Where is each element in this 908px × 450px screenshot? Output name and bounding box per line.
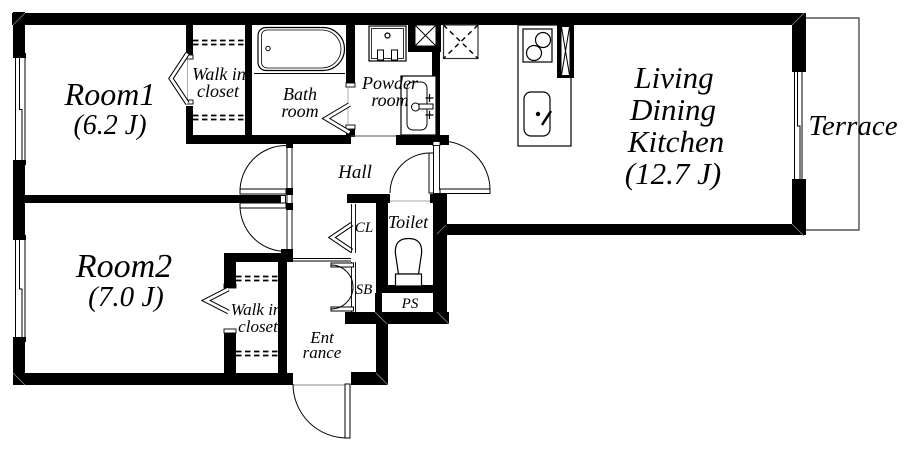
svg-text:CL: CL [355, 220, 373, 236]
svg-text:SB: SB [356, 282, 373, 298]
svg-text:Room1: Room1 [64, 76, 156, 112]
svg-text:rance: rance [303, 343, 342, 362]
svg-text:Kitchen: Kitchen [627, 124, 724, 159]
svg-text:PS: PS [401, 296, 419, 312]
svg-text:room: room [371, 90, 408, 110]
svg-text:Dining: Dining [629, 92, 716, 127]
svg-text:Toilet: Toilet [388, 212, 429, 232]
svg-text:(7.0 J): (7.0 J) [88, 281, 164, 313]
svg-text:(12.7 J): (12.7 J) [625, 156, 721, 191]
svg-text:Room2: Room2 [75, 248, 172, 285]
svg-text:Terrace: Terrace [808, 110, 897, 142]
svg-text:Hall: Hall [337, 162, 372, 183]
svg-text:(6.2 J): (6.2 J) [73, 110, 146, 141]
svg-text:closet: closet [238, 317, 279, 336]
svg-text:room: room [281, 101, 318, 121]
svg-text:Living: Living [633, 60, 713, 95]
svg-text:closet: closet [197, 81, 240, 101]
